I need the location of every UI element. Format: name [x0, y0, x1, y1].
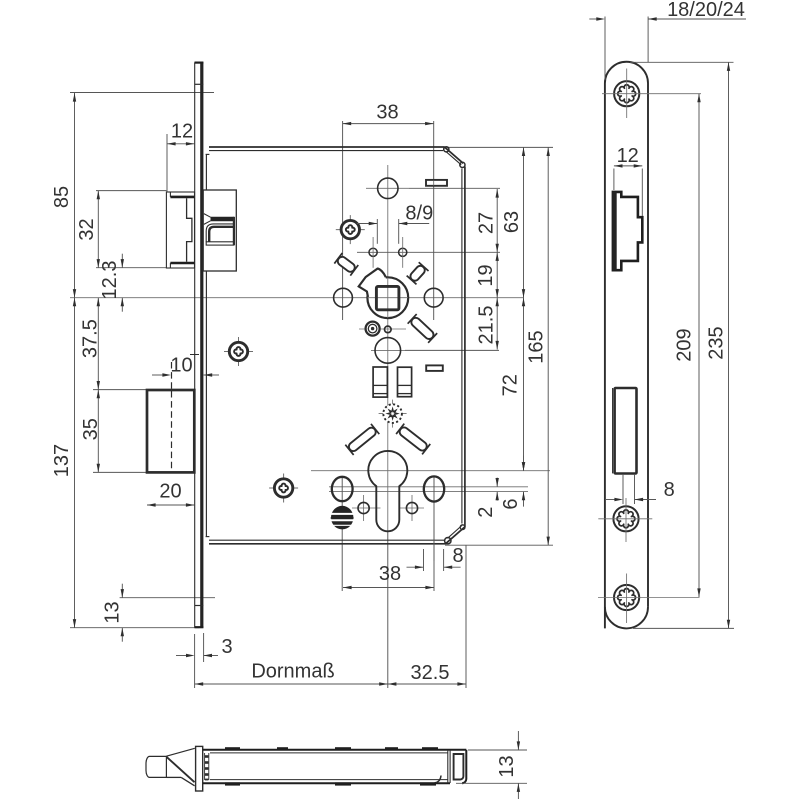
- svg-text:137: 137: [51, 444, 73, 477]
- svg-text:10: 10: [170, 355, 192, 377]
- svg-text:37.5: 37.5: [80, 319, 102, 358]
- svg-text:20: 20: [159, 481, 181, 503]
- svg-text:13: 13: [102, 601, 124, 623]
- svg-text:8: 8: [452, 545, 463, 567]
- svg-text:235: 235: [706, 326, 728, 359]
- svg-text:38: 38: [376, 102, 398, 124]
- svg-text:12: 12: [617, 145, 639, 167]
- svg-text:209: 209: [674, 328, 696, 361]
- svg-text:63: 63: [501, 211, 523, 233]
- svg-text:12.3: 12.3: [99, 261, 121, 300]
- svg-text:8/9: 8/9: [405, 203, 433, 225]
- svg-text:12: 12: [171, 120, 193, 142]
- svg-text:2: 2: [475, 507, 497, 518]
- svg-text:6: 6: [500, 498, 522, 509]
- svg-text:72: 72: [500, 374, 522, 396]
- svg-text:32: 32: [76, 218, 98, 240]
- svg-text:38: 38: [379, 563, 401, 585]
- svg-text:Dornmaß: Dornmaß: [251, 661, 334, 683]
- svg-text:32.5: 32.5: [411, 662, 450, 684]
- svg-text:18/20/24: 18/20/24: [667, 0, 745, 21]
- svg-text:8: 8: [664, 479, 675, 501]
- svg-text:27: 27: [476, 212, 498, 234]
- svg-text:3: 3: [221, 636, 232, 658]
- svg-text:35: 35: [80, 418, 102, 440]
- svg-text:19: 19: [475, 264, 497, 286]
- svg-text:21.5: 21.5: [476, 306, 498, 345]
- svg-text:165: 165: [526, 330, 548, 363]
- svg-text:13: 13: [496, 755, 518, 777]
- svg-text:85: 85: [51, 186, 73, 208]
